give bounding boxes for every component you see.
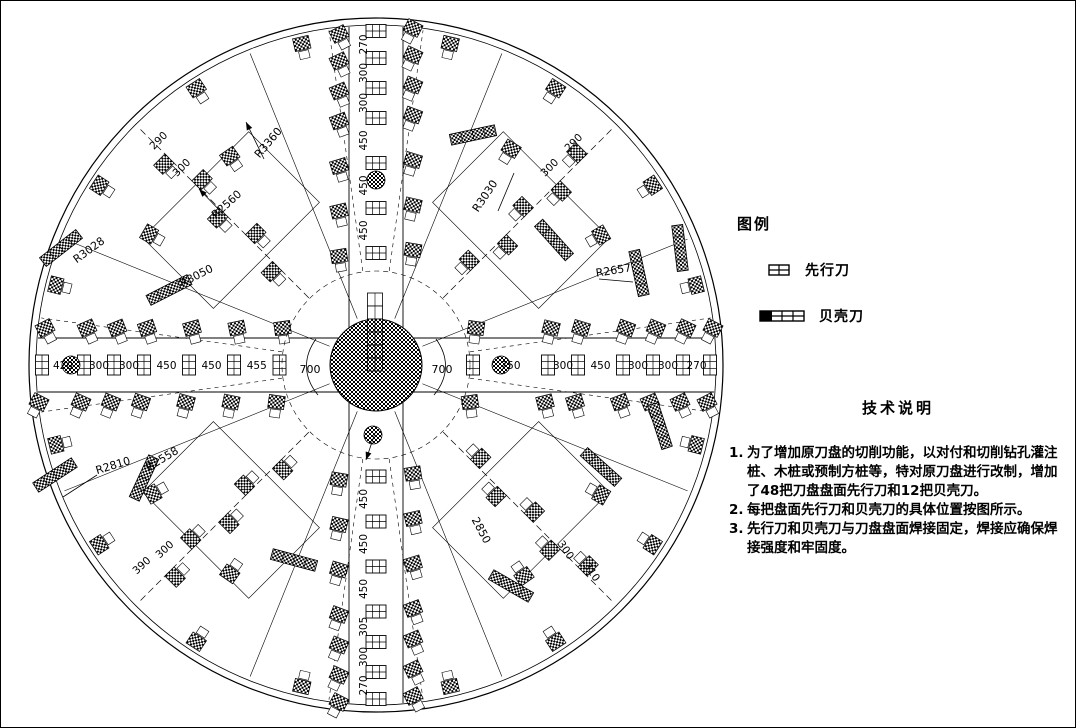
- shell-cutter-block: [679, 276, 704, 297]
- pilot-cutter: [366, 157, 386, 170]
- shell-cutter-block: [610, 393, 633, 419]
- shell-cutter-block: [403, 630, 426, 656]
- dim-label: 270: [686, 360, 706, 372]
- shell-cutter-block: [186, 78, 211, 105]
- shell-cutter-block: [518, 495, 545, 522]
- dim-label: 450: [358, 175, 370, 195]
- shell-cutter-block: [327, 561, 349, 587]
- shell-cutter-block: [186, 624, 211, 651]
- note-text: 为了增加原刀盘的切削功能，以对付和切削钻孔灌注桩、木桩或预制方桩等，特对原刀盘进…: [747, 444, 1067, 501]
- shell-cutter-block: [174, 394, 195, 419]
- dim-label: 305: [358, 617, 370, 637]
- dim-label: 450: [358, 220, 370, 240]
- shell-cutter-bar: [580, 448, 622, 487]
- legend-title: 图例: [737, 213, 864, 234]
- shell-cutter-block: [404, 466, 423, 490]
- pilot-cutter: [183, 355, 196, 375]
- dim-label: 700: [432, 363, 453, 376]
- tech-note-3: 3. 先行刀和贝壳刀与刀盘盘面焊接固定，焊接应确保焊接强度和牢固度。: [729, 520, 1067, 558]
- shell-cutter-block: [261, 261, 288, 288]
- shell-cutter-block: [326, 636, 349, 662]
- legend: 图例 先行刀 贝壳刀: [737, 213, 864, 326]
- dim-label: 420: [53, 360, 73, 372]
- shell-cutter-block: [536, 394, 557, 419]
- round-cutter: [364, 426, 382, 444]
- shell-cutter-block: [329, 25, 353, 52]
- pilot-cutter: [273, 355, 286, 375]
- shell-cutter-block: [403, 687, 427, 714]
- pilot-cutter: [366, 247, 386, 260]
- shell-cutter-icon: [759, 309, 805, 323]
- shell-cutter-block: [670, 393, 694, 420]
- dim-label: 455: [247, 360, 267, 372]
- note-number: 3.: [729, 520, 747, 558]
- shell-cutter-block: [401, 151, 423, 177]
- shell-cutter-block: [402, 197, 423, 222]
- shell-cutter-block: [137, 319, 159, 345]
- shell-cutter-block: [219, 146, 245, 173]
- shell-cutter-block: [613, 319, 636, 345]
- shell-cutter-block: [228, 320, 248, 345]
- dim-label: 300: [358, 63, 370, 83]
- legend-label-pilot: 先行刀: [805, 260, 850, 280]
- dim-label: R3030: [470, 178, 501, 215]
- pilot-cutter: [366, 515, 386, 528]
- pilot-cutter: [467, 355, 480, 375]
- right-panel: 图例 先行刀 贝壳刀 技术: [723, 1, 1071, 728]
- pilot-cutter: [366, 202, 386, 215]
- pilot-cutter: [366, 605, 386, 618]
- shell-cutter-block: [541, 624, 566, 651]
- shell-cutter-block: [266, 394, 285, 418]
- legend-label-shell: 贝壳刀: [819, 306, 864, 326]
- note-number: 1.: [729, 444, 747, 501]
- dim-label: R2810: [94, 454, 132, 477]
- note-text: 先行刀和贝壳刀与刀盘盘面焊接固定，焊接应确保焊接强度和牢固度。: [747, 520, 1067, 558]
- shell-cutter-block: [293, 670, 314, 695]
- pilot-cutter: [366, 560, 386, 573]
- dim-label: R2657: [595, 261, 632, 279]
- shell-cutter-block: [246, 223, 273, 250]
- dim-label: 300: [358, 93, 370, 113]
- tech-note-2: 2. 每把盘面先行刀和贝壳刀的具体位置按图所示。: [729, 501, 1067, 520]
- dim-label: 300: [658, 360, 678, 372]
- shell-cutter-block: [565, 393, 587, 419]
- pilot-cutter: [366, 470, 386, 483]
- shell-cutter-block: [293, 35, 314, 60]
- shell-cutter-block: [403, 555, 425, 581]
- shell-cutter-block: [480, 480, 507, 507]
- dim-label: 750: [500, 360, 520, 372]
- dim-label: 700: [300, 363, 321, 376]
- dim-label: R3050: [178, 262, 216, 290]
- shell-cutter-block: [569, 319, 591, 345]
- shell-cutter-block: [139, 224, 166, 249]
- dim-label: 450: [590, 360, 610, 372]
- dim-label: R2558: [144, 444, 181, 473]
- dim-label: 300: [119, 360, 139, 372]
- pilot-cutter: [138, 355, 151, 375]
- shell-cutter-block: [491, 235, 518, 262]
- legend-item-shell-cutter: 贝壳刀: [759, 306, 864, 326]
- shell-cutter-block: [541, 78, 566, 105]
- dim-label: 300: [89, 360, 109, 372]
- pilot-cutter: [572, 355, 585, 375]
- legend-item-pilot-cutter: 先行刀: [767, 260, 864, 280]
- dim-label: 450: [358, 130, 370, 150]
- drawing-sheet: 4203003004504504557002703003004503007507…: [0, 0, 1076, 728]
- shell-cutter-block: [180, 522, 207, 549]
- shell-cutter-block: [439, 35, 460, 60]
- shell-cutter-bar: [672, 225, 689, 272]
- dim-label: 450: [156, 360, 176, 372]
- note-number: 2.: [729, 501, 747, 520]
- dim-label: 270: [358, 34, 370, 54]
- dim-label: 270: [358, 675, 370, 695]
- shell-cutter-block: [635, 530, 662, 555]
- tech-notes-title: 技术说明: [729, 397, 1067, 418]
- shell-cutter-block: [506, 196, 533, 223]
- dim-label: 300: [553, 360, 573, 372]
- shell-cutter-block: [220, 394, 240, 419]
- shell-cutter-block: [325, 666, 349, 693]
- tech-notes: 技术说明 1. 为了增加原刀盘的切削功能，以对付和切削钻孔灌注桩、木桩或预制方桩…: [729, 397, 1067, 558]
- shell-cutter-block: [635, 175, 662, 200]
- shell-cutter-block: [539, 320, 560, 345]
- shell-cutter-block: [234, 469, 261, 496]
- shell-cutter-block: [274, 320, 293, 344]
- shell-cutter-block: [403, 600, 426, 626]
- shell-cutter-block: [326, 606, 349, 632]
- shell-cutter-block: [329, 112, 352, 138]
- dim-label: R3360: [252, 125, 285, 161]
- dim-label: 300: [358, 647, 370, 667]
- dim-label: 450: [201, 360, 221, 372]
- shell-cutter-block: [328, 516, 349, 541]
- shell-cutter-block: [325, 693, 349, 720]
- shell-cutter-bar: [535, 219, 574, 261]
- shell-cutter-block: [699, 319, 723, 346]
- dim-label: 300: [539, 157, 562, 180]
- shell-cutter-block: [461, 394, 480, 418]
- dim-label: 300: [628, 360, 648, 372]
- shell-cutter-block: [330, 248, 349, 272]
- shell-cutter-block: [545, 181, 572, 208]
- dim-label: 450: [358, 579, 370, 599]
- pilot-cutter: [228, 355, 241, 375]
- shell-cutter-block: [25, 393, 49, 420]
- tech-note-1: 1. 为了增加原刀盘的切削功能，以对付和切削钻孔灌注桩、木桩或预制方桩等，特对原…: [729, 444, 1067, 501]
- shell-cutter-block: [165, 561, 192, 588]
- shell-cutter-block: [643, 319, 666, 345]
- shell-cutter-block: [466, 320, 485, 344]
- shell-cutter-block: [183, 320, 204, 345]
- shell-cutter-block: [496, 139, 521, 166]
- shell-cutter-block: [404, 510, 425, 535]
- shell-cutter-block: [67, 393, 91, 420]
- shell-cutter-block: [464, 442, 491, 469]
- dim-label: 2850: [469, 515, 494, 546]
- shell-cutter-block: [399, 19, 423, 46]
- shell-cutter-block: [400, 106, 423, 132]
- shell-cutter-block: [98, 393, 121, 419]
- shell-cutter-block: [453, 250, 480, 277]
- shell-cutter-block: [439, 670, 460, 695]
- shell-cutter-block: [330, 203, 351, 228]
- note-text: 每把盘面先行刀和贝壳刀的具体位置按图所示。: [747, 501, 1067, 520]
- dim-label: 450: [358, 489, 370, 509]
- dim-label: 450: [358, 534, 370, 554]
- shell-cutter-block: [403, 242, 422, 266]
- shell-cutter-bar: [33, 458, 78, 492]
- shell-cutter-block: [48, 433, 73, 454]
- shell-cutter-block: [584, 225, 611, 250]
- shell-cutter-block: [697, 393, 721, 420]
- shell-cutter-block: [77, 319, 101, 346]
- shell-cutter-block: [219, 507, 246, 534]
- dim-label: 300: [154, 539, 177, 561]
- shell-cutter-block: [219, 557, 245, 584]
- shell-cutter-block: [128, 393, 150, 419]
- dim-label: 390: [131, 555, 154, 577]
- shell-cutter-block: [48, 276, 73, 297]
- dim-label: 290: [148, 130, 171, 153]
- shell-cutter-block: [584, 480, 611, 505]
- shell-cutter-block: [403, 660, 427, 687]
- shell-cutter-block: [272, 453, 299, 480]
- shell-cutter-block: [329, 157, 351, 183]
- shell-cutter-block: [89, 530, 116, 555]
- shell-cutter-bar: [449, 125, 496, 145]
- shell-cutter-bar: [648, 402, 673, 449]
- pilot-cutter: [36, 355, 49, 375]
- shell-cutter-block: [329, 472, 348, 496]
- shell-cutter-block: [89, 175, 116, 200]
- shell-cutter-block: [107, 319, 130, 345]
- shell-cutter-block: [679, 433, 704, 454]
- shell-cutter-block: [672, 319, 696, 346]
- pilot-cutter-icon: [767, 263, 791, 277]
